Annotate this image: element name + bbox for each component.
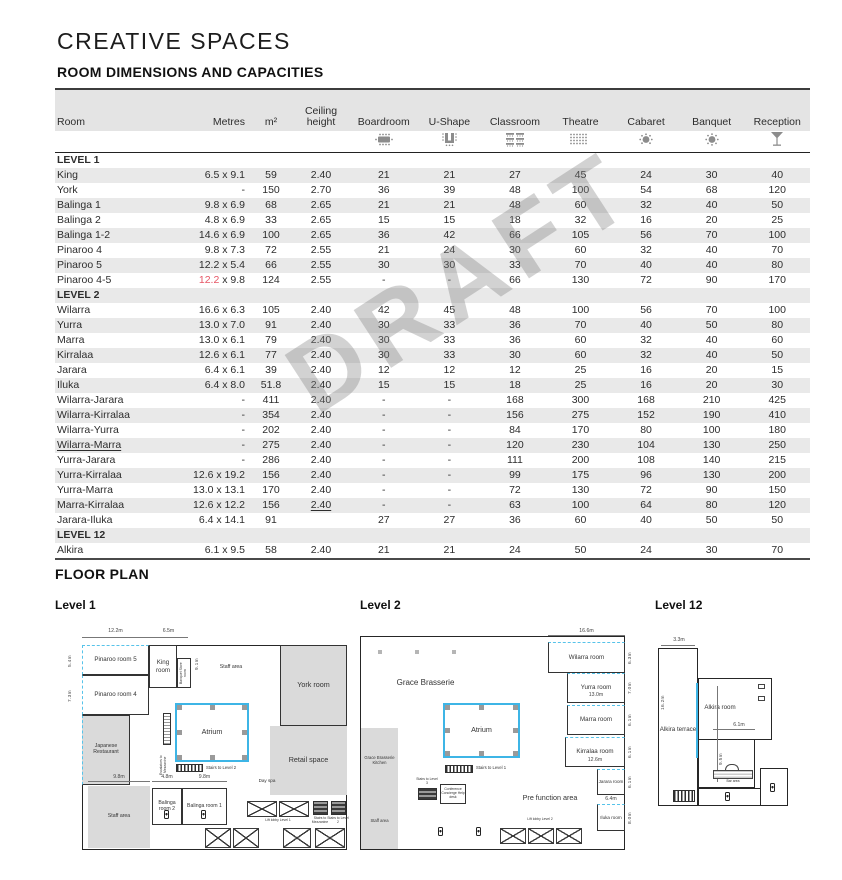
cell-metres: 12.6 x 12.2 xyxy=(187,498,251,513)
cell-room: Pinaroo 5 xyxy=(55,258,187,273)
staff-area-top: Staff area xyxy=(203,646,259,690)
cell-room: Pinaroo 4 xyxy=(55,243,187,258)
cell-ushape: 30 xyxy=(417,258,483,273)
table-row: Iluka6.4 x 8.051.82.4015151825162030 xyxy=(55,378,810,393)
cell-ushape: 39 xyxy=(417,183,483,198)
cell-classroom: 63 xyxy=(482,498,548,513)
cell-room: Pinaroo 4-5 xyxy=(55,273,187,288)
cell-banquet: 68 xyxy=(679,183,745,198)
stair-box xyxy=(205,828,231,848)
cell-boardroom: 12 xyxy=(351,363,417,378)
cell-sqm: 105 xyxy=(251,303,291,318)
cell-sqm: 411 xyxy=(251,393,291,408)
cell-classroom: 30 xyxy=(482,243,548,258)
escalator xyxy=(163,713,171,745)
cell-banquet: 50 xyxy=(679,318,745,333)
dim-line xyxy=(152,781,227,782)
cell-room: Kirralaa xyxy=(55,348,187,363)
iluka-room: Iluka room xyxy=(597,804,625,831)
cell-cabaret: 54 xyxy=(613,183,679,198)
cell-reception: 100 xyxy=(744,303,810,318)
cell-ushape: 27 xyxy=(417,513,483,528)
cell-metres: - xyxy=(187,423,251,438)
stair-box xyxy=(233,828,259,848)
cell-reception: 410 xyxy=(744,408,810,423)
table-row: King6.5 x 9.1592.4021212745243040 xyxy=(55,168,810,183)
cell-classroom: 168 xyxy=(482,393,548,408)
cell-banquet: 20 xyxy=(679,213,745,228)
column-marker xyxy=(415,650,419,654)
cell-cabaret: 16 xyxy=(613,363,679,378)
cell-cabaret: 56 xyxy=(613,228,679,243)
cell-theatre: 300 xyxy=(548,393,614,408)
cell-ceiling: 2.40 xyxy=(291,483,351,498)
table-title: ROOM DIMENSIONS AND CAPACITIES xyxy=(57,64,323,80)
cell-banquet: 20 xyxy=(679,378,745,393)
cell-reception: 50 xyxy=(744,513,810,528)
cell-banquet: 190 xyxy=(679,408,745,423)
cell-sqm: 72 xyxy=(251,243,291,258)
column-marker xyxy=(452,650,456,654)
cell-metres: 4.8 x 6.9 xyxy=(187,213,251,228)
table-row: Wilarra16.6 x 6.31052.404245481005670100 xyxy=(55,303,810,318)
cell-banquet: 40 xyxy=(679,243,745,258)
cell-room: Wilarra-Kirralaa xyxy=(55,408,187,423)
cell-classroom: 33 xyxy=(482,258,548,273)
cell-ceiling: 2.40 xyxy=(291,303,351,318)
cell-cabaret: 72 xyxy=(613,483,679,498)
cell-ushape: - xyxy=(417,498,483,513)
cell-ceiling: 2.40 xyxy=(291,408,351,423)
cell-ceiling: 2.40 xyxy=(291,378,351,393)
cell-ushape: 24 xyxy=(417,243,483,258)
cell-sqm: 150 xyxy=(251,183,291,198)
cell-room: Wilarra-Jarara xyxy=(55,393,187,408)
cell-metres: 13.0 x 7.0 xyxy=(187,318,251,333)
banquet-icon xyxy=(699,132,725,152)
balinga-room-1: Balinga room 1 xyxy=(182,788,227,825)
cell-ceiling: 2.40 xyxy=(291,393,351,408)
cell-room: Balinga 1-2 xyxy=(55,228,187,243)
cell-ceiling: 2.40 xyxy=(291,423,351,438)
col-classroom: Classroom xyxy=(482,117,548,128)
table-row: York-1502.703639481005468120 xyxy=(55,183,810,198)
dim-line xyxy=(88,781,150,782)
cell-sqm: 91 xyxy=(251,513,291,528)
cell-boardroom: - xyxy=(351,483,417,498)
column-marker xyxy=(378,650,382,654)
cell-reception: 25 xyxy=(744,213,810,228)
cell-room: Yurra-Jarara xyxy=(55,453,187,468)
toilet-icon xyxy=(164,810,169,819)
stairs-l3-label: Stairs to Level 3 xyxy=(416,778,438,786)
cell-ceiling: 2.40 xyxy=(291,453,351,468)
cell-sqm: 202 xyxy=(251,423,291,438)
cell-classroom: 48 xyxy=(482,303,548,318)
cell-ceiling: 2.40 xyxy=(291,348,351,363)
lift-lobby-label: Lift lobby Level 1 xyxy=(247,819,309,823)
cell-metres: 12.2 x 9.8 xyxy=(187,273,251,288)
cell-reception: 100 xyxy=(744,228,810,243)
cell-metres: 9.8 x 6.9 xyxy=(187,198,251,213)
cell-cabaret: 80 xyxy=(613,423,679,438)
cell-banquet: 80 xyxy=(679,498,745,513)
col-boardroom: Boardroom xyxy=(351,117,417,128)
layout-icon-row xyxy=(55,131,810,153)
cell-banquet: 30 xyxy=(679,168,745,183)
dim-label: 8.0m xyxy=(628,806,633,830)
stairs-to-level-2 xyxy=(176,764,203,772)
col-ceiling: Ceiling height xyxy=(291,106,351,128)
cabaret-icon xyxy=(633,132,659,152)
cell-sqm: 354 xyxy=(251,408,291,423)
cell-theatre: 200 xyxy=(548,453,614,468)
stairs-to-level-3 xyxy=(418,788,437,800)
cell-reception: 40 xyxy=(744,168,810,183)
cell-theatre: 105 xyxy=(548,228,614,243)
cell-boardroom: 21 xyxy=(351,198,417,213)
table-row: Jarara6.4 x 6.1392.4012121225162015 xyxy=(55,363,810,378)
cell-ceiling: 2.70 xyxy=(291,183,351,198)
cell-reception: 80 xyxy=(744,318,810,333)
cell-sqm: 100 xyxy=(251,228,291,243)
cell-metres: 9.8 x 7.3 xyxy=(187,243,251,258)
table-row: Balinga 19.8 x 6.9682.6521214860324050 xyxy=(55,198,810,213)
cell-classroom: 36 xyxy=(482,318,548,333)
cell-ceiling: 2.40 xyxy=(291,318,351,333)
stairs-to-level-1 xyxy=(445,765,473,773)
cell-banquet: 130 xyxy=(679,468,745,483)
cell-sqm: 51.8 xyxy=(251,378,291,393)
cell-reception: 215 xyxy=(744,453,810,468)
cell-ceiling: 2.40 xyxy=(291,543,351,558)
cell-boardroom: - xyxy=(351,438,417,453)
bar xyxy=(713,770,753,779)
cell-cabaret: 96 xyxy=(613,468,679,483)
table-row: Wilarra-Jarara-4112.40--168300168210425 xyxy=(55,393,810,408)
dim-label: 7.3m xyxy=(68,678,73,714)
cell-cabaret: 16 xyxy=(613,213,679,228)
plan-title-level-2: Level 2 xyxy=(360,598,401,612)
cell-room: Wilarra-Yurra xyxy=(55,423,187,438)
cell-banquet: 50 xyxy=(679,513,745,528)
cell-reception: 180 xyxy=(744,423,810,438)
cell-ushape: - xyxy=(417,453,483,468)
cell-room: Jarara-Iluka xyxy=(55,513,187,528)
cell-sqm: 275 xyxy=(251,438,291,453)
cell-theatre: 60 xyxy=(548,198,614,213)
cell-room: Wilarra xyxy=(55,303,187,318)
dim-label: 16.2m xyxy=(661,683,666,723)
cell-banquet: 90 xyxy=(679,483,745,498)
cell-banquet: 40 xyxy=(679,348,745,363)
cell-ushape: - xyxy=(417,273,483,288)
furniture xyxy=(758,696,765,701)
cell-classroom: 18 xyxy=(482,378,548,393)
cell-banquet: 100 xyxy=(679,423,745,438)
cell-ceiling: 2.65 xyxy=(291,228,351,243)
table-body: LEVEL 1King6.5 x 9.1592.4021212745243040… xyxy=(55,153,810,560)
cell-theatre: 60 xyxy=(548,333,614,348)
cell-classroom: 84 xyxy=(482,423,548,438)
cell-classroom: 72 xyxy=(482,483,548,498)
table-row: Wilarra-Kirralaa-3542.40--15627515219041… xyxy=(55,408,810,423)
dim-label: 6.3m xyxy=(628,644,633,672)
cell-reception: 200 xyxy=(744,468,810,483)
cell-classroom: 120 xyxy=(482,438,548,453)
cell-metres: 6.5 x 9.1 xyxy=(187,168,251,183)
cell-banquet: 130 xyxy=(679,438,745,453)
cell-cabaret: 152 xyxy=(613,408,679,423)
cell-room: Iluka xyxy=(55,378,187,393)
cell-ushape: 33 xyxy=(417,348,483,363)
cell-ceiling xyxy=(291,513,351,528)
cell-boardroom: 30 xyxy=(351,318,417,333)
cell-reception: 70 xyxy=(744,543,810,558)
dim-label: 12.6m xyxy=(565,757,625,763)
lift-box xyxy=(247,801,277,817)
plan-title-level-12: Level 12 xyxy=(655,598,702,612)
cell-boardroom: - xyxy=(351,453,417,468)
cell-reception: 50 xyxy=(744,198,810,213)
dim-line xyxy=(661,645,695,646)
cell-room: Alkira xyxy=(55,543,187,558)
cell-reception: 15 xyxy=(744,363,810,378)
cell-theatre: 170 xyxy=(548,423,614,438)
table-row: Yurra-Marra13.0 x 13.11702.40--721307290… xyxy=(55,483,810,498)
cell-sqm: 39 xyxy=(251,363,291,378)
dim-line xyxy=(548,635,625,636)
cell-ceiling: 2.65 xyxy=(291,213,351,228)
classroom-icon xyxy=(502,132,528,152)
dim-label: 5.4m xyxy=(68,647,73,675)
cell-metres: 6.4 x 6.1 xyxy=(187,363,251,378)
stairs-l2-label: Stairs to Level 2 xyxy=(327,817,349,825)
stairs-l1-label: Stairs to Level 1 xyxy=(476,766,516,771)
cell-cabaret: 40 xyxy=(613,513,679,528)
cell-banquet: 40 xyxy=(679,198,745,213)
floor-plan-level-2: Level 2 Grace Brasserie Grace Brasserie … xyxy=(360,598,645,860)
cell-metres: - xyxy=(187,183,251,198)
cell-room: Jarara xyxy=(55,363,187,378)
stairs-label: Stairs to Level 2 xyxy=(206,766,246,771)
cell-room: Marra-Kirralaa xyxy=(55,498,187,513)
table-row: Pinaroo 512.2 x 5.4662.5530303370404080 xyxy=(55,258,810,273)
page-title: CREATIVE SPACES xyxy=(57,28,291,55)
cell-boardroom: - xyxy=(351,498,417,513)
cell-ushape: 21 xyxy=(417,198,483,213)
table-row: Balinga 24.8 x 6.9332.6515151832162025 xyxy=(55,213,810,228)
cell-cabaret: 32 xyxy=(613,333,679,348)
cell-room: Wilarra-Marra xyxy=(55,438,187,453)
cell-sqm: 156 xyxy=(251,498,291,513)
cell-boardroom: 36 xyxy=(351,183,417,198)
banquet-store-room: Banquet Store room xyxy=(177,658,191,688)
cell-reception: 30 xyxy=(744,378,810,393)
cell-theatre: 175 xyxy=(548,468,614,483)
cell-cabaret: 40 xyxy=(613,318,679,333)
dim-label: 16.6m xyxy=(548,628,625,634)
cell-cabaret: 24 xyxy=(613,168,679,183)
alkira-terrace: Alkira terrace xyxy=(658,726,698,733)
col-banquet: Banquet xyxy=(679,117,745,128)
cell-sqm: 79 xyxy=(251,333,291,348)
cell-classroom: 36 xyxy=(482,513,548,528)
cell-cabaret: 108 xyxy=(613,453,679,468)
cell-cabaret: 64 xyxy=(613,498,679,513)
cell-sqm: 66 xyxy=(251,258,291,273)
cell-room: Yurra xyxy=(55,318,187,333)
cell-banquet: 30 xyxy=(679,543,745,558)
cell-theatre: 32 xyxy=(548,213,614,228)
cell-theatre: 130 xyxy=(548,273,614,288)
table-row: Yurra13.0 x 7.0912.4030333670405080 xyxy=(55,318,810,333)
plan-title-level-1: Level 1 xyxy=(55,598,96,612)
floor-plan-title: FLOOR PLAN xyxy=(55,566,149,582)
balinga-room-2: Balinga room 2 xyxy=(152,788,182,825)
cell-banquet: 140 xyxy=(679,453,745,468)
cell-sqm: 170 xyxy=(251,483,291,498)
alkira-room: Alkira room xyxy=(700,704,740,711)
dim-line xyxy=(713,729,755,730)
cell-cabaret: 104 xyxy=(613,438,679,453)
floor-plan-level-12: Level 12 3.3m 16.2m Alkira terrace Alkir… xyxy=(655,598,810,860)
cell-banquet: 40 xyxy=(679,258,745,273)
cell-metres: 13.0 x 13.1 xyxy=(187,483,251,498)
cell-theatre: 60 xyxy=(548,348,614,363)
cell-boardroom: - xyxy=(351,393,417,408)
cell-metres: 16.6 x 6.3 xyxy=(187,303,251,318)
cell-cabaret: 32 xyxy=(613,198,679,213)
toilet-icon xyxy=(201,810,206,819)
col-metres: Metres xyxy=(187,117,251,128)
cell-banquet: 90 xyxy=(679,273,745,288)
col-reception: Reception xyxy=(744,117,810,128)
cell-room: York xyxy=(55,183,187,198)
cell-room: Marra xyxy=(55,333,187,348)
cell-theatre: 60 xyxy=(548,243,614,258)
cell-sqm: 58 xyxy=(251,543,291,558)
cell-sqm: 286 xyxy=(251,453,291,468)
cell-ceiling: 2.40 xyxy=(291,168,351,183)
jarara-room: Jarara room xyxy=(597,769,625,795)
cell-theatre: 50 xyxy=(548,543,614,558)
cell-room: King xyxy=(55,168,187,183)
yurra-room: Yurra room xyxy=(567,673,625,703)
dim-label: 6.4m xyxy=(597,796,625,802)
cell-boardroom: - xyxy=(351,468,417,483)
cell-ushape: - xyxy=(417,393,483,408)
cell-metres: 12.2 x 5.4 xyxy=(187,258,251,273)
dim-label: 3.3m xyxy=(663,637,695,643)
cell-boardroom: 21 xyxy=(351,168,417,183)
cell-classroom: 99 xyxy=(482,468,548,483)
table-row: Yurra-Kirralaa12.6 x 19.21562.40--991759… xyxy=(55,468,810,483)
cell-banquet: 20 xyxy=(679,363,745,378)
cell-cabaret: 32 xyxy=(613,243,679,258)
cell-ceiling: 2.55 xyxy=(291,258,351,273)
table-row: Pinaroo 4-512.2 x 9.81242.55--6613072901… xyxy=(55,273,810,288)
cell-cabaret: 16 xyxy=(613,378,679,393)
cell-metres: - xyxy=(187,453,251,468)
cell-theatre: 100 xyxy=(548,498,614,513)
cell-metres: 13.0 x 6.1 xyxy=(187,333,251,348)
toilet-icon xyxy=(476,827,481,836)
cell-classroom: 18 xyxy=(482,213,548,228)
cell-reception: 425 xyxy=(744,393,810,408)
dim-label: 7.0m xyxy=(628,675,633,701)
cell-theatre: 230 xyxy=(548,438,614,453)
cell-banquet: 70 xyxy=(679,228,745,243)
cell-boardroom: 30 xyxy=(351,258,417,273)
cell-boardroom: 15 xyxy=(351,378,417,393)
col-room: Room xyxy=(55,117,187,128)
toilet-icon xyxy=(770,783,775,792)
cell-room: Yurra-Marra xyxy=(55,483,187,498)
cell-theatre: 100 xyxy=(548,303,614,318)
cell-sqm: 33 xyxy=(251,213,291,228)
pinaroo-5-room: Pinaroo room 5 xyxy=(82,645,149,675)
cell-theatre: 70 xyxy=(548,258,614,273)
table-row: Yurra-Jarara-2862.40--111200108140215 xyxy=(55,453,810,468)
cell-room: Yurra-Kirralaa xyxy=(55,468,187,483)
staff-area: Staff area xyxy=(361,793,398,849)
dim-label: 12.2m xyxy=(82,628,149,634)
cell-theatre: 25 xyxy=(548,363,614,378)
cell-boardroom: 21 xyxy=(351,543,417,558)
table-row: Jarara-Iluka6.4 x 14.19127273660405050 xyxy=(55,513,810,528)
theatre-icon xyxy=(567,132,593,152)
cell-theatre: 25 xyxy=(548,378,614,393)
cell-metres: 6.1 x 9.5 xyxy=(187,543,251,558)
cell-theatre: 100 xyxy=(548,183,614,198)
table-row: Alkira6.1 x 9.5582.4021212450243070 xyxy=(55,543,810,558)
cell-ceiling: 2.40 xyxy=(291,498,351,513)
stairs-to-mezzanine xyxy=(313,801,328,815)
lift-box xyxy=(528,828,554,844)
cell-metres: 14.6 x 6.9 xyxy=(187,228,251,243)
cell-ceiling: 2.55 xyxy=(291,243,351,258)
cell-sqm: 91 xyxy=(251,318,291,333)
table-row: Balinga 1-214.6 x 6.91002.65364266105567… xyxy=(55,228,810,243)
dim-label: 6.1m xyxy=(628,740,633,764)
cell-ushape: 21 xyxy=(417,168,483,183)
marra-room: Marra room xyxy=(567,705,625,735)
cell-ushape: - xyxy=(417,468,483,483)
section-row: LEVEL 1 xyxy=(55,153,810,168)
lift-box xyxy=(500,828,526,844)
dim-label: 6.1m xyxy=(628,771,633,793)
cell-ceiling: 2.40 xyxy=(291,333,351,348)
document-page: CREATIVE SPACES ROOM DIMENSIONS AND CAPA… xyxy=(0,0,842,880)
cell-room: Balinga 1 xyxy=(55,198,187,213)
cell-room: Balinga 2 xyxy=(55,213,187,228)
dim-label: 6.5m xyxy=(149,628,188,634)
cell-banquet: 70 xyxy=(679,303,745,318)
wilarra-room: Wilarra room xyxy=(548,642,625,673)
cell-ushape: 45 xyxy=(417,303,483,318)
table-row: Kirralaa12.6 x 6.1772.4030333060324050 xyxy=(55,348,810,363)
cell-boardroom: 15 xyxy=(351,213,417,228)
stairs-to-level-2-box xyxy=(331,801,346,815)
grace-brasserie-kitchen: Grace Brasserie Kitchen xyxy=(361,728,398,793)
cell-boardroom: 36 xyxy=(351,228,417,243)
cell-reception: 60 xyxy=(744,333,810,348)
dim-label: 9.1m xyxy=(195,650,200,678)
cell-sqm: 156 xyxy=(251,468,291,483)
cell-metres: - xyxy=(187,438,251,453)
atrium: Atrium xyxy=(175,703,249,762)
